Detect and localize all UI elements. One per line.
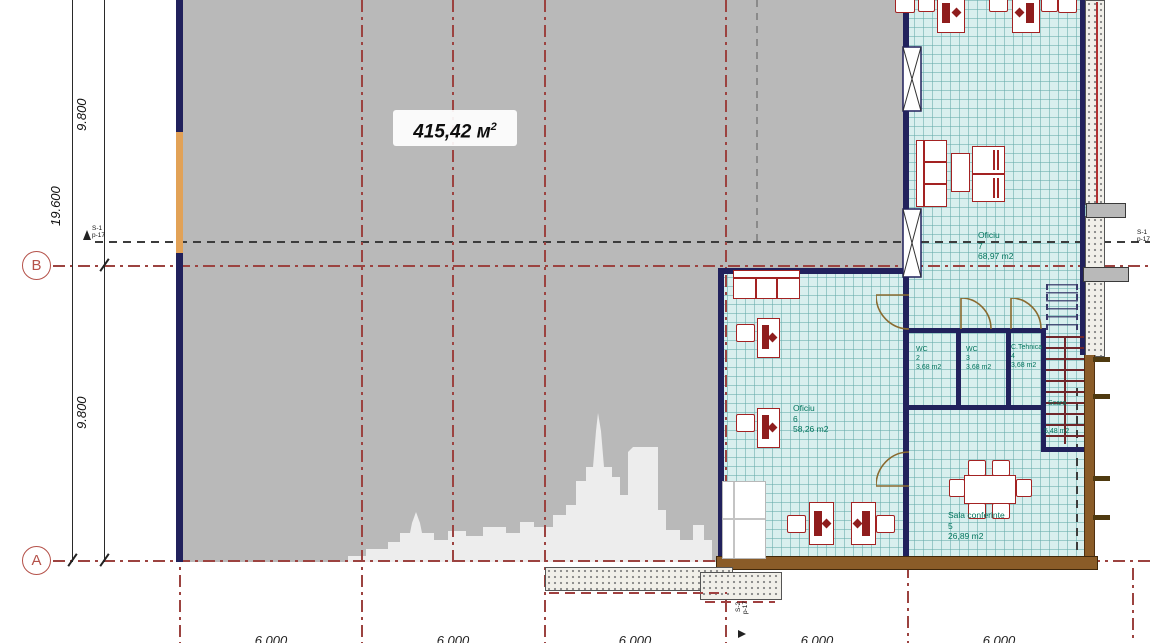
dimension-label-bottom-4: 6.000 [787, 633, 847, 643]
desk-icon [937, 0, 965, 33]
section-arrow-right-icon [738, 630, 746, 638]
coffee-table-icon [951, 153, 970, 192]
section-marker-left: S-1 p-17 [92, 225, 105, 240]
room-number: 3 [966, 355, 991, 364]
desk-icon [851, 502, 876, 545]
area-sup: 2 [491, 121, 497, 133]
section-arrow-up-icon [83, 230, 91, 240]
timber-tick-2 [1093, 394, 1110, 399]
left-wall-orange-segment [176, 132, 183, 253]
sofa-icon [916, 140, 947, 207]
chair-icon [968, 460, 986, 476]
unfinished-area-upper [180, 0, 905, 269]
chair-icon [918, 0, 935, 12]
room-number: 6 [793, 414, 828, 425]
axis-line-v7-bottom [1132, 568, 1134, 643]
timber-tick-3 [1093, 476, 1110, 481]
foundation-dash-left [549, 592, 727, 594]
exterior-ledge-lower [1083, 267, 1129, 282]
right-wall-hatch-low [1085, 280, 1105, 357]
door-arc-icon [876, 450, 910, 488]
armchair-icon [972, 174, 1005, 202]
chair-icon [989, 0, 1008, 12]
chair-icon [1016, 479, 1032, 497]
room-number: 5 [948, 521, 1005, 532]
section-marker-right: S-1 p-17 [1137, 229, 1150, 244]
dimension-label-bottom-5: 6.000 [969, 633, 1029, 643]
area-watermark: 415,42 м2 [393, 110, 517, 146]
door-arc-icon [1010, 298, 1042, 331]
room-area: 3,68 m2 [966, 364, 991, 373]
armchair-icon [972, 146, 1005, 174]
door-arc-icon [960, 298, 992, 331]
bottom-timber-wall [716, 556, 1098, 570]
room-name: WC [966, 346, 991, 355]
dimension-label-bottom-2: 6.000 [423, 633, 483, 643]
wc2-wc3-divider [956, 328, 961, 410]
room-label-scara-name: Scara [1048, 400, 1066, 409]
room-area: 3,68 m2 [1011, 362, 1042, 371]
timber-tick-4 [1093, 515, 1110, 520]
room-name: Oficiu [793, 403, 828, 414]
desk-icon [757, 408, 780, 448]
room-number: 2 [916, 355, 941, 364]
room-label-wc3: WC 3 3,68 m2 [966, 346, 991, 372]
room-label-oficiu6: Oficiu 6 58,26 m2 [793, 403, 828, 435]
right-wall-hatch-top [1085, 0, 1105, 205]
section-marker-bottom: S-2 p-17 [735, 592, 750, 622]
room-area: 26,89 m2 [948, 531, 1005, 542]
dimension-line-outer [72, 0, 73, 562]
axis-line-v3 [452, 0, 454, 562]
room-name: C.Tehnica [1011, 344, 1042, 353]
conference-table-icon [964, 475, 1016, 504]
chair-icon [895, 0, 915, 13]
chair-icon [876, 515, 895, 533]
chair-icon [736, 414, 755, 432]
room-number: 4 [1011, 353, 1042, 362]
right-wall-hatch-mid [1085, 216, 1105, 269]
chair-icon [787, 515, 806, 533]
chair-icon [736, 324, 755, 342]
room-number: 7 [978, 241, 1013, 252]
left-wall-upper [176, 0, 183, 132]
dimension-line-inner [104, 0, 105, 562]
door-arc-icon [876, 294, 910, 332]
axis-line-b [53, 265, 1150, 267]
window-icon [902, 46, 922, 112]
chair-icon [949, 479, 965, 497]
white-sofa-icon [722, 481, 766, 559]
dimension-label-total: 19.600 [48, 172, 66, 240]
room-name: Sala conferinte [948, 510, 1005, 521]
axis-line-v2 [361, 0, 363, 643]
window-icon [902, 208, 922, 278]
right-wall-red-line [1096, 2, 1098, 203]
room-label-sala: Sala conferinte 5 26,89 m2 [948, 510, 1005, 542]
reference-dashed-line [756, 0, 758, 243]
area-value: 415,42 м [413, 121, 490, 142]
dimension-label-bottom-3: 6.000 [605, 633, 665, 643]
room-label-scara-area: 5,48 m2 [1044, 428, 1069, 437]
dimension-label-lower: 9.800 [74, 384, 92, 442]
room-label-wc2: WC 2 3,68 m2 [916, 346, 941, 372]
desk-icon [809, 502, 834, 545]
room-area: 58,26 m2 [793, 424, 828, 435]
chair-icon [1058, 0, 1077, 13]
room-area: 3,68 m2 [916, 364, 941, 373]
floor-plan: Oficiu 7 68,97 m2 Oficiu 6 58,26 m2 WC 2… [0, 0, 1150, 643]
desk-icon [757, 318, 780, 358]
room-name: Oficiu [978, 230, 1013, 241]
axis-marker-a: A [22, 546, 51, 575]
axis-line-a-left [53, 560, 718, 562]
dimension-label-bottom-1: 6.000 [241, 633, 301, 643]
desk-icon [1012, 0, 1040, 33]
timber-tick-1 [1093, 357, 1110, 362]
room-label-oficiu7: Oficiu 7 68,97 m2 [978, 230, 1013, 262]
sofa-icon [733, 270, 800, 299]
axis-line-v6-bottom [907, 566, 909, 643]
chair-icon [992, 460, 1010, 476]
room-name: WC [916, 346, 941, 355]
stairs-upper-flight [1046, 284, 1078, 330]
exterior-ledge-upper [1086, 203, 1126, 218]
room-area: 68,97 m2 [978, 251, 1013, 262]
city-skyline-watermark [348, 405, 720, 562]
axis-marker-b: B [22, 251, 51, 280]
right-wall-timber [1084, 355, 1095, 560]
chair-icon [1041, 0, 1058, 12]
left-wall-lower [176, 253, 183, 562]
wc-bottom-wall [903, 405, 1046, 410]
axis-line-v4 [544, 0, 546, 643]
dimension-label-upper: 9.800 [74, 84, 92, 146]
room-label-ctehnica: C.Tehnica 4 3,68 m2 [1011, 344, 1042, 370]
